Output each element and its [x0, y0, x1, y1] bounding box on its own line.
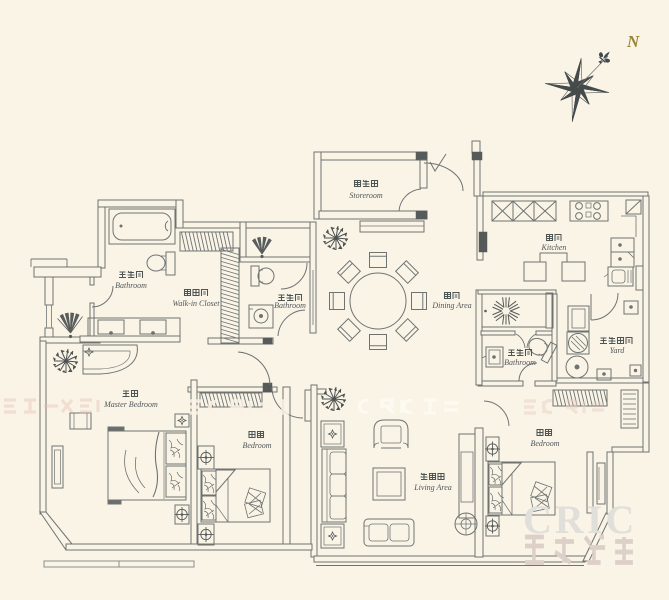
- svg-text:Master Bedroom: Master Bedroom: [103, 400, 158, 409]
- svg-text:Dining Area: Dining Area: [431, 301, 471, 310]
- svg-text:Kitchen: Kitchen: [541, 243, 567, 252]
- svg-text:Living Area: Living Area: [413, 483, 452, 492]
- svg-text:Storeroom: Storeroom: [349, 191, 382, 200]
- svg-text:Bathroom: Bathroom: [115, 281, 147, 290]
- svg-text:Walk-in Closet: Walk-in Closet: [172, 299, 220, 308]
- svg-text:Yard: Yard: [610, 346, 626, 355]
- svg-text:Bathroom: Bathroom: [274, 301, 306, 310]
- svg-text:Bathroom: Bathroom: [504, 358, 536, 367]
- svg-text:N: N: [626, 32, 640, 51]
- svg-text:Bedroom: Bedroom: [530, 439, 559, 448]
- svg-text:Bedroom: Bedroom: [242, 441, 271, 450]
